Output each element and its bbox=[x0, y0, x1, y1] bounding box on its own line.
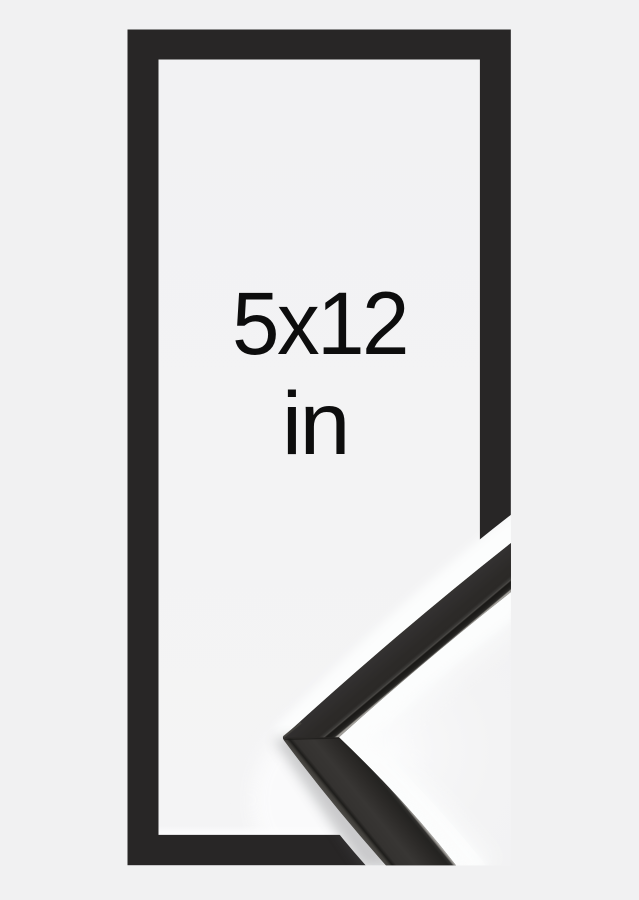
svg-text:5x12: 5x12 bbox=[232, 273, 407, 373]
svg-text:in: in bbox=[282, 373, 348, 473]
